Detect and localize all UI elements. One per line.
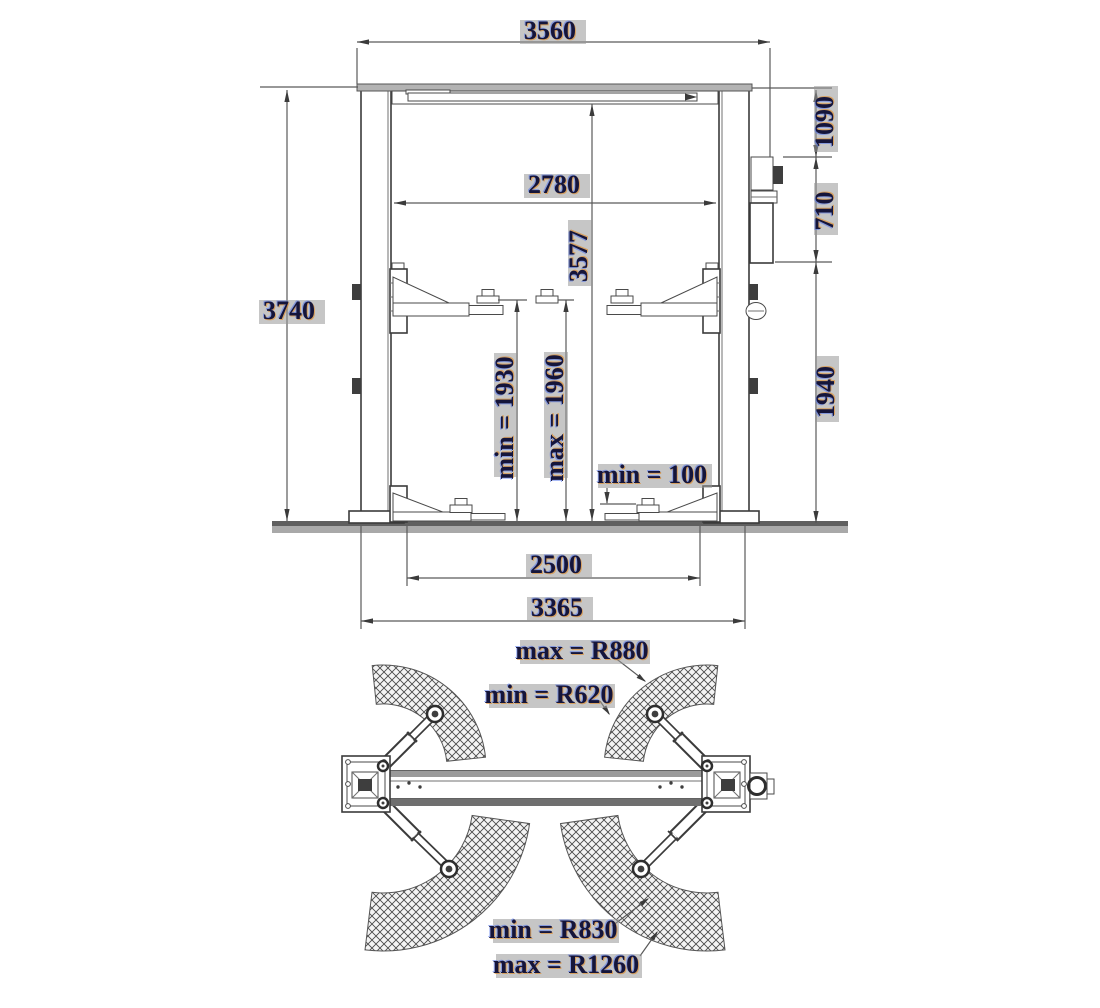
dim-label-min-1930: min = 1930	[490, 353, 519, 480]
front-right-swing-arm	[647, 706, 707, 766]
dim-text: 3365	[531, 593, 583, 622]
center-pad-extended	[536, 290, 558, 304]
dim-label-min-100: min = 100	[597, 460, 712, 489]
dim-text: max = R1260	[493, 950, 639, 979]
right-arm-inner	[607, 306, 641, 315]
left-column-plan	[342, 756, 390, 812]
right-arm-gusset	[661, 277, 717, 303]
front-left-swing-arm	[383, 706, 443, 766]
dim-drive-through: 2500	[407, 526, 700, 586]
dim-text: 1090	[810, 96, 839, 148]
left-arm-inner	[469, 306, 503, 315]
right-pad-base	[611, 296, 633, 303]
dim-text: 2780	[528, 170, 580, 199]
lift-technical-drawing: 3560 3740 2780 3577	[0, 0, 1100, 1008]
dim-clear-width: 2780	[394, 170, 716, 206]
dim-label-1090: 1090	[810, 86, 839, 152]
dim-label-2780: 2780	[524, 170, 590, 199]
dim-text: max = R880	[515, 636, 648, 665]
base-crossbeam	[376, 771, 704, 806]
dim-label-r880: max = R880	[515, 636, 650, 665]
dim-label-3740: 3740	[259, 296, 325, 325]
dim-text: 710	[810, 192, 839, 231]
right-column	[719, 85, 749, 521]
dim-label-2500: 2500	[526, 550, 592, 579]
left-anchor-clip-lower	[352, 378, 361, 394]
right-anchor-clip-upper	[749, 284, 758, 300]
dim-label-3577: 3577	[564, 220, 593, 286]
dim-label-3560: 3560	[520, 16, 586, 45]
right-carriage-raised	[607, 263, 720, 333]
hydraulic-power-unit	[750, 203, 773, 263]
dim-text: min = 1930	[490, 356, 519, 479]
dim-right-chain: 1090 710 1940	[752, 86, 840, 523]
dim-label-r830: min = R830	[489, 915, 619, 944]
dim-text: max = 1960	[540, 354, 569, 481]
control-box-handle	[773, 166, 783, 184]
dim-text: min = R620	[485, 680, 614, 709]
dim-lift-min: min = 1930	[490, 300, 527, 521]
dim-lift-max: max = 1960	[540, 300, 574, 521]
dim-text: min = R830	[489, 915, 618, 944]
drawing-canvas: 3560 3740 2780 3577	[0, 0, 1100, 1008]
control-box	[751, 157, 773, 190]
left-anchor-clip-upper	[352, 284, 361, 300]
rear-left-swing-arm	[383, 803, 457, 877]
right-anchor-clip-lower	[749, 378, 758, 394]
left-arm-outer	[393, 303, 469, 316]
right-arm-outer	[641, 303, 717, 316]
dim-label-3365: 3365	[527, 593, 593, 622]
dim-pad-min-height: min = 100	[597, 460, 712, 504]
top-view: max = R880 min = R620 min = R830 ma	[342, 636, 774, 979]
dim-text: 2500	[530, 550, 582, 579]
front-view: 3560 3740 2780 3577	[259, 16, 848, 629]
dim-label-max-1960: max = 1960	[540, 352, 569, 482]
dim-short-arm-min: min = R620	[485, 680, 615, 715]
dim-label-710: 710	[810, 183, 839, 235]
overhead-beam	[357, 84, 752, 104]
overhead-safety-bar	[408, 93, 697, 101]
left-carriage-raised	[390, 263, 503, 333]
left-pad-base	[477, 296, 499, 303]
dim-label-1940: 1940	[811, 356, 840, 422]
dim-text: 3577	[564, 230, 593, 282]
right-pad-screw	[616, 290, 628, 297]
dim-short-arm-max: max = R880	[515, 636, 650, 682]
dim-text: 3740	[263, 296, 315, 325]
left-arm-gusset	[393, 277, 449, 303]
right-column-plan	[702, 756, 774, 812]
dim-text: 1940	[811, 366, 840, 418]
dim-text: 3560	[524, 16, 576, 45]
dim-total-height: 3740	[259, 87, 358, 521]
dim-label-r1260: max = R1260	[493, 950, 642, 979]
dim-label-r620: min = R620	[485, 680, 615, 709]
left-column	[361, 85, 391, 521]
left-pad-screw	[482, 290, 494, 297]
left-carriage-lowered	[390, 486, 505, 522]
dim-text: min = 100	[597, 460, 707, 489]
rear-right-swing-arm	[633, 803, 707, 877]
